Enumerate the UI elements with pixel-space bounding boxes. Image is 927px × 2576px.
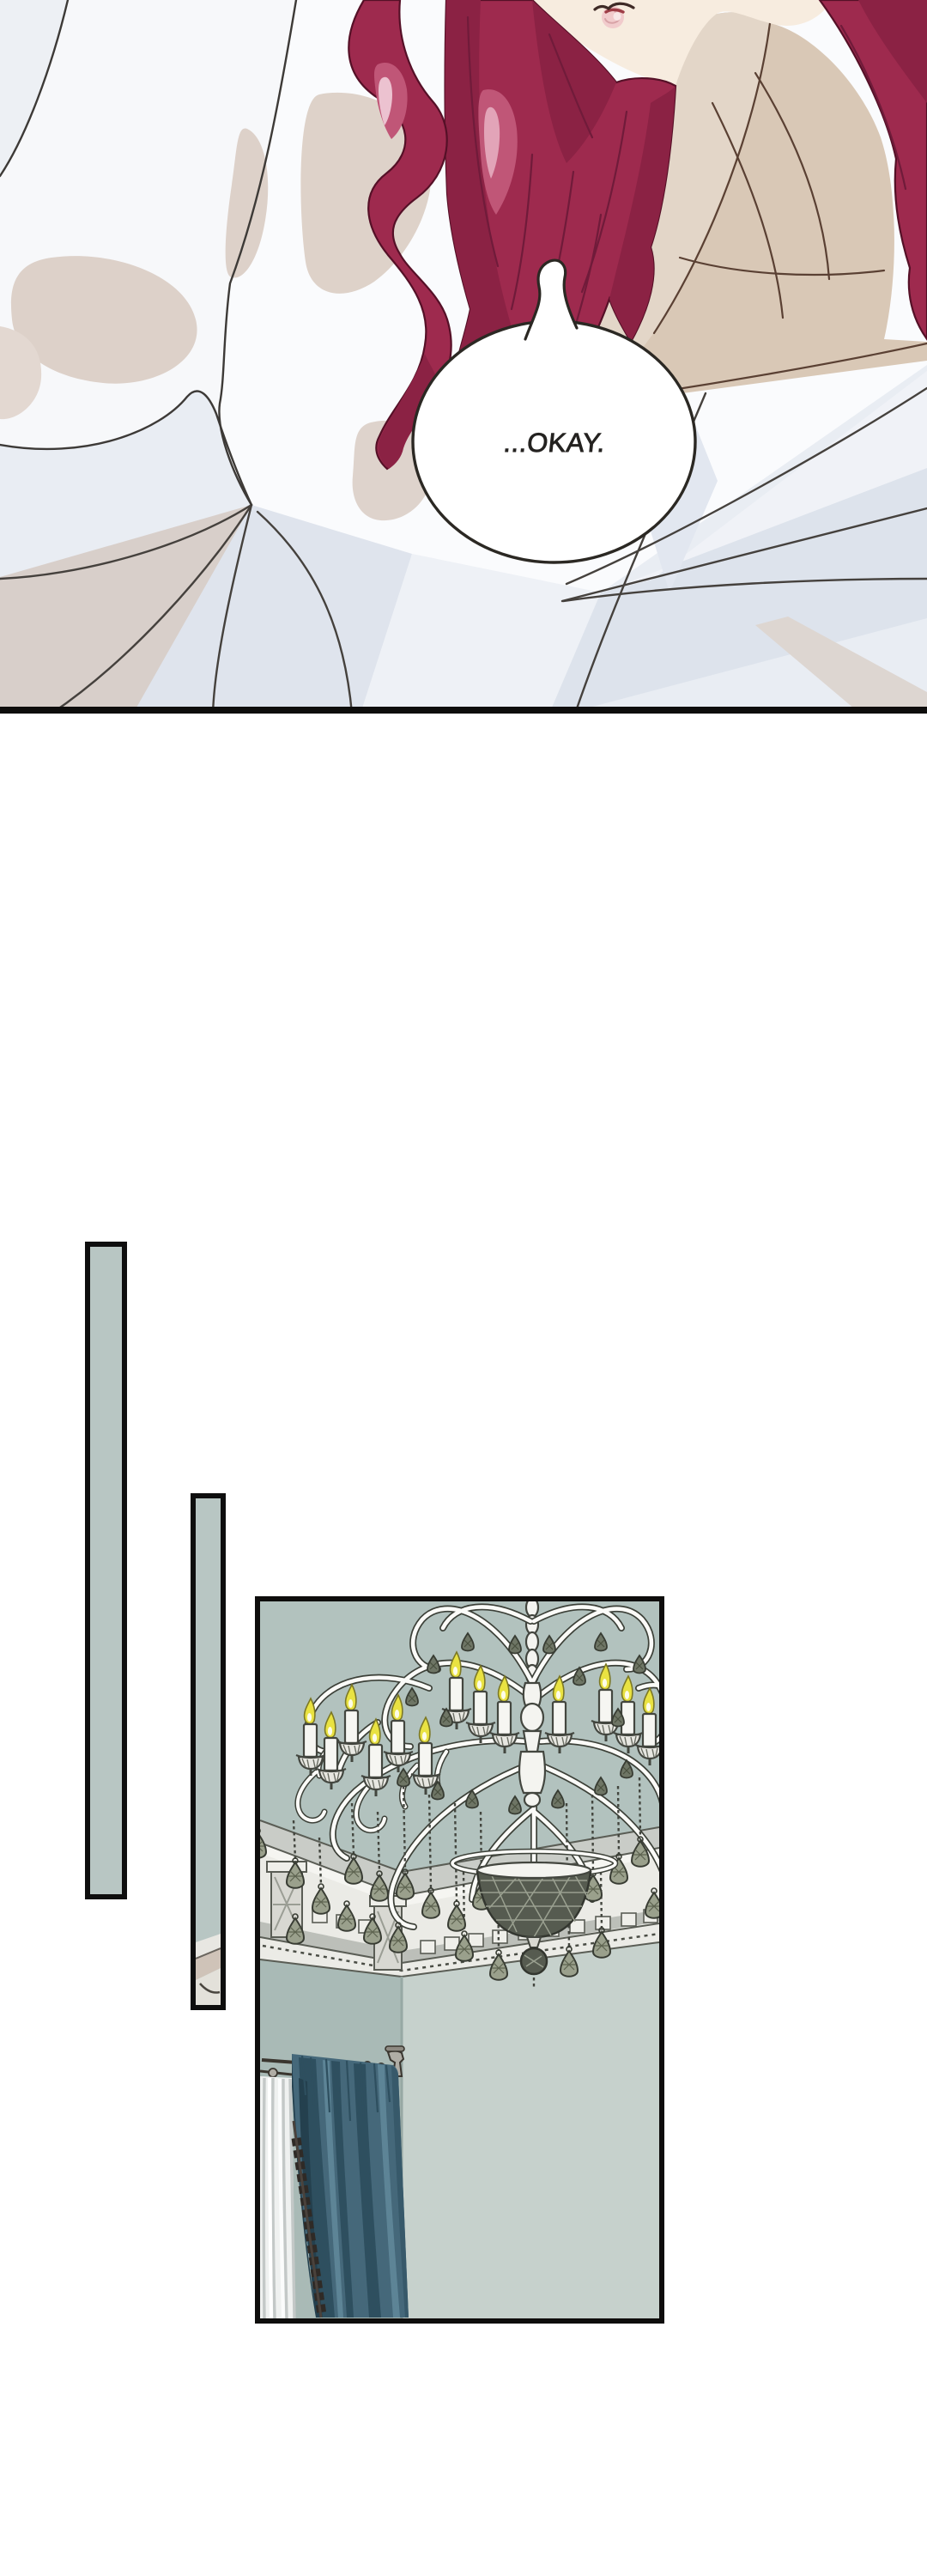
svg-text:...OKAY.: ...OKAY.: [502, 428, 607, 458]
